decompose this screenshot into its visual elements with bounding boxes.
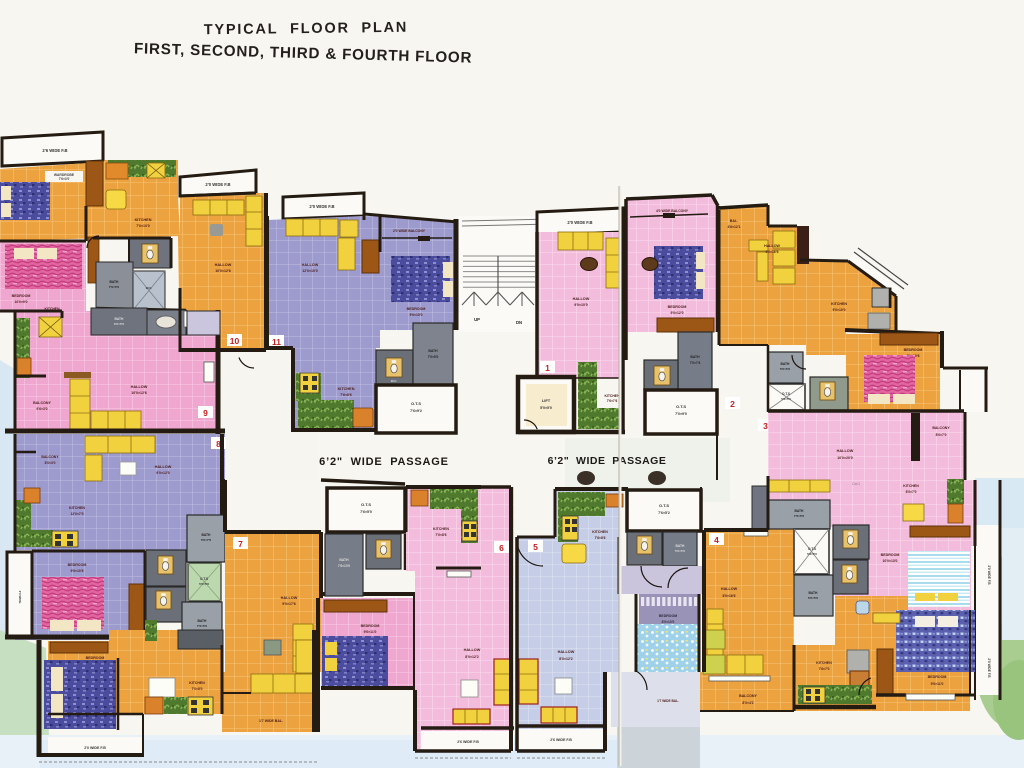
- svg-text:TYPICAL FLOOR PLAN: TYPICAL FLOOR PLAN: [204, 20, 409, 38]
- svg-text:6'0×5'0: 6'0×5'0: [114, 322, 124, 326]
- svg-text:KITCHEN: KITCHEN: [831, 302, 847, 306]
- svg-text:5'0×5'0: 5'0×5'0: [781, 397, 791, 401]
- svg-text:11: 11: [272, 337, 281, 347]
- svg-text:O.T.S: O.T.S: [808, 547, 816, 551]
- svg-text:12'0×7'0: 12'0×7'0: [70, 512, 83, 516]
- svg-text:9'0×17'6: 9'0×17'6: [282, 602, 295, 606]
- svg-text:BATH: BATH: [339, 558, 349, 562]
- svg-text:BEDROOM: BEDROOM: [361, 624, 380, 628]
- svg-text:8'0×4'2: 8'0×4'2: [742, 701, 753, 705]
- svg-text:7'6×8'6: 7'6×8'6: [340, 393, 352, 397]
- svg-text:BEDROOM: BEDROOM: [904, 348, 923, 352]
- svg-text:2'0 WIDE: 2'0 WIDE: [18, 591, 22, 604]
- svg-text:2'0 WIDE F.B: 2'0 WIDE F.B: [567, 220, 592, 225]
- svg-text:12'0×10'0: 12'0×10'0: [302, 269, 317, 273]
- svg-text:8'0×7'0: 8'0×7'0: [906, 490, 917, 494]
- svg-text:5'0×5'0: 5'0×5'0: [199, 582, 209, 586]
- svg-text:10'0×12'6: 10'0×12'6: [131, 391, 146, 395]
- svg-text:7'0×5'0: 7'0×5'0: [428, 355, 439, 359]
- svg-text:7'0×7'6: 7'0×7'6: [690, 361, 701, 365]
- svg-text:KITCHEN: KITCHEN: [592, 530, 608, 534]
- svg-text:7'6×7'0: 7'6×7'0: [819, 667, 830, 671]
- svg-text:BATH: BATH: [428, 349, 438, 353]
- svg-text:HALLOW: HALLOW: [573, 297, 590, 301]
- svg-text:7'0×9'0: 7'0×9'0: [675, 412, 687, 416]
- svg-text:KITCHEN: KITCHEN: [604, 394, 620, 398]
- svg-text:O.T.S: O.T.S: [411, 401, 421, 406]
- svg-text:2'0 WIDE BALCONY: 2'0 WIDE BALCONY: [393, 229, 426, 233]
- svg-text:9'0×12'0: 9'0×12'0: [670, 311, 683, 315]
- svg-text:2'0 WIDE F.B: 2'0 WIDE F.B: [205, 182, 230, 187]
- svg-text:KITCHEN: KITCHEN: [189, 681, 205, 685]
- svg-text:10'0×12'6: 10'0×12'6: [215, 269, 230, 273]
- svg-text:7'6×5'0: 7'6×5'0: [197, 624, 207, 628]
- svg-text:1'7 WIDE BAL.: 1'7 WIDE BAL.: [259, 719, 283, 723]
- svg-text:5'0×5'0: 5'0×5'0: [807, 552, 817, 556]
- svg-text:9'0×10'0: 9'0×10'0: [832, 308, 845, 312]
- svg-text:BAL.: BAL.: [730, 219, 738, 223]
- svg-text:9'0×10'0: 9'0×10'0: [574, 303, 587, 307]
- svg-text:7'6×5'2: 7'6×5'2: [658, 511, 670, 515]
- svg-text:HALLOW: HALLOW: [558, 650, 575, 654]
- svg-text:7'6×5'0: 7'6×5'0: [794, 514, 804, 518]
- svg-text:2'0 WIDE F.B: 2'0 WIDE F.B: [987, 565, 991, 585]
- svg-text:5: 5: [533, 542, 538, 552]
- svg-text:5'0×5'0: 5'0×5'0: [808, 596, 818, 600]
- svg-text:□ • □: □ • □: [852, 482, 860, 486]
- svg-text:HALLOW: HALLOW: [302, 263, 319, 267]
- svg-text:BEDROOM: BEDROOM: [407, 307, 426, 311]
- svg-text:3: 3: [763, 421, 768, 431]
- svg-text:HALLOW: HALLOW: [721, 587, 738, 591]
- svg-text:HALLOW: HALLOW: [837, 449, 854, 453]
- svg-text:9'6×3'0: 9'6×3'0: [36, 407, 47, 411]
- svg-text:BEDROOM: BEDROOM: [12, 294, 31, 298]
- svg-text:BEDROOM: BEDROOM: [68, 563, 87, 567]
- svg-text:7'0×8'0: 7'0×8'0: [192, 687, 203, 691]
- svg-text:HALLOW: HALLOW: [155, 465, 172, 469]
- svg-text:BEDROOM: BEDROOM: [668, 305, 687, 309]
- svg-text:HALLOW: HALLOW: [281, 596, 298, 600]
- svg-text:9'0×10'6: 9'0×10'6: [70, 569, 83, 573]
- svg-text:W.C.: W.C.: [146, 286, 153, 290]
- svg-text:5'0×7'6: 5'0×7'6: [201, 538, 211, 542]
- svg-text:1'7 WIDE BAL.: 1'7 WIDE BAL.: [657, 699, 679, 703]
- svg-text:5'0×5'0: 5'0×5'0: [780, 367, 790, 371]
- svg-text:BATH: BATH: [202, 533, 212, 537]
- svg-text:BEDROOM: BEDROOM: [881, 553, 900, 557]
- svg-text:9'0×16'6: 9'0×16'6: [765, 250, 778, 254]
- svg-text:KITCHEN: KITCHEN: [69, 506, 85, 510]
- svg-text:6’2" WIDE PASSAGE: 6’2" WIDE PASSAGE: [548, 455, 667, 467]
- svg-text:LIFT: LIFT: [542, 398, 551, 403]
- svg-text:2'6 WIDE F.B: 2'6 WIDE F.B: [550, 738, 572, 742]
- svg-text:HALLOW: HALLOW: [464, 648, 481, 652]
- svg-text:BALCONY: BALCONY: [41, 455, 59, 459]
- svg-text:DN: DN: [516, 320, 522, 325]
- svg-text:O.T.S: O.T.S: [361, 502, 371, 507]
- svg-text:BATH: BATH: [110, 280, 120, 284]
- svg-text:2'0 WIDE F.B: 2'0 WIDE F.B: [84, 746, 106, 750]
- svg-text:7'6×7'6: 7'6×7'6: [607, 399, 618, 403]
- svg-text:10'0×13'0: 10'0×13'0: [883, 559, 898, 563]
- svg-text:4: 4: [714, 535, 719, 545]
- svg-text:9'0×11'0: 9'0×11'0: [931, 682, 944, 686]
- svg-text:O.T.S: O.T.S: [676, 404, 686, 409]
- svg-text:BATH: BATH: [809, 591, 819, 595]
- svg-text:1: 1: [545, 363, 550, 373]
- svg-text:BATH: BATH: [198, 619, 208, 623]
- svg-text:KITCHEN: KITCHEN: [338, 387, 355, 391]
- svg-text:KITCHEN: KITCHEN: [816, 661, 832, 665]
- svg-text:5'0×5'0: 5'0×5'0: [540, 406, 552, 410]
- svg-text:7'6×3'0: 7'6×3'0: [59, 177, 70, 181]
- svg-text:8'0×3'0: 8'0×3'0: [45, 461, 56, 465]
- svg-text:5'0×5'0: 5'0×5'0: [675, 549, 685, 553]
- svg-text:7'6×10'0: 7'6×10'0: [338, 564, 350, 568]
- svg-text:KITCHEN: KITCHEN: [433, 527, 449, 531]
- svg-text:7'0×10'0: 7'0×10'0: [136, 224, 149, 228]
- svg-text:7'6×8'6: 7'6×8'6: [595, 536, 606, 540]
- svg-text:10: 10: [230, 336, 240, 346]
- svg-text:8'0×12'2: 8'0×12'2: [559, 657, 572, 661]
- svg-text:8'0×7'0: 8'0×7'0: [936, 433, 947, 437]
- svg-text:O.T.S: O.T.S: [659, 503, 669, 508]
- svg-text:HALLOW: HALLOW: [131, 385, 148, 389]
- svg-text:7'6×9'2: 7'6×9'2: [410, 409, 422, 413]
- svg-text:HALLOW: HALLOW: [215, 263, 232, 267]
- svg-text:9'0×10'0: 9'0×10'0: [409, 313, 422, 317]
- svg-text:7: 7: [238, 539, 243, 549]
- svg-text:7'0×8'6: 7'0×8'6: [435, 533, 446, 537]
- svg-text:BALCONY: BALCONY: [932, 426, 950, 430]
- svg-text:BATH: BATH: [115, 317, 125, 321]
- svg-text:6: 6: [499, 543, 504, 553]
- svg-text:9'0×11'0: 9'0×11'0: [364, 630, 377, 634]
- svg-text:8'0×12'2: 8'0×12'2: [465, 655, 478, 659]
- svg-text:BATH: BATH: [781, 362, 791, 366]
- svg-text:2'0 WIDE F.B: 2'0 WIDE F.B: [987, 658, 991, 678]
- svg-text:6’2" WIDE PASSAGE: 6’2" WIDE PASSAGE: [319, 456, 449, 468]
- svg-text:10'0×20'0: 10'0×20'0: [837, 456, 852, 460]
- svg-text:KITCHEN: KITCHEN: [903, 484, 919, 488]
- svg-text:2: 2: [730, 399, 735, 409]
- svg-text:BALCONY: BALCONY: [739, 694, 757, 698]
- svg-text:8'0×16'6: 8'0×16'6: [722, 594, 735, 598]
- svg-text:10'0×9'0: 10'0×9'0: [14, 300, 27, 304]
- svg-text:2'6 WIDE F.B: 2'6 WIDE F.B: [457, 740, 479, 744]
- svg-text:7'0×5'0: 7'0×5'0: [109, 285, 119, 289]
- svg-text:BATH: BATH: [690, 355, 700, 359]
- svg-text:BEDROOM: BEDROOM: [86, 656, 105, 660]
- svg-text:BATH: BATH: [676, 544, 686, 548]
- svg-text:BEDROOM: BEDROOM: [659, 614, 677, 618]
- svg-text:HALLOW: HALLOW: [764, 244, 780, 248]
- svg-text:BEDROOM: BEDROOM: [928, 675, 947, 679]
- svg-text:2'0 WIDE F.B: 2'0 WIDE F.B: [309, 204, 334, 209]
- svg-text:BATH: BATH: [795, 509, 805, 513]
- svg-text:UP: UP: [474, 317, 480, 322]
- svg-text:KITCHEN: KITCHEN: [135, 218, 152, 222]
- svg-text:O.T.S: O.T.S: [200, 577, 208, 581]
- svg-text:O.T.S: O.T.S: [782, 392, 790, 396]
- svg-text:9'0×12'0: 9'0×12'0: [156, 471, 169, 475]
- svg-text:9: 9: [203, 408, 208, 418]
- svg-text:4'6×12'1: 4'6×12'1: [727, 225, 740, 229]
- svg-text:8'0×10'0: 8'0×10'0: [662, 620, 675, 624]
- svg-text:7'6×5'0: 7'6×5'0: [360, 510, 372, 514]
- svg-text:2'6 WIDE F.B: 2'6 WIDE F.B: [42, 148, 67, 153]
- svg-text:BALCONY: BALCONY: [33, 401, 51, 405]
- svg-text:4'0 WIDE BALCONY: 4'0 WIDE BALCONY: [656, 209, 689, 213]
- svg-text:W.C.: W.C.: [391, 379, 398, 383]
